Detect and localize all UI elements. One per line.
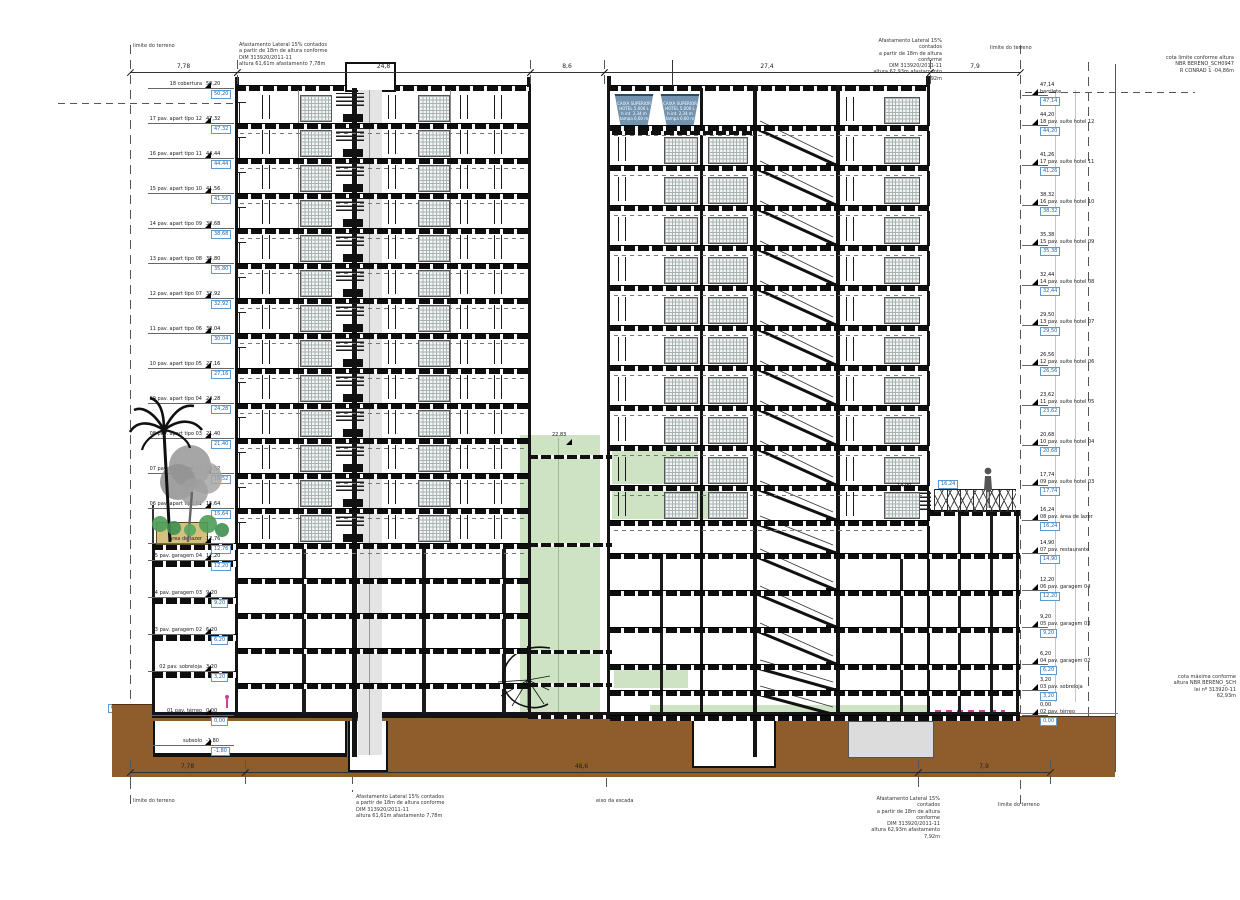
window-grid [418, 410, 450, 437]
balcony-cap [237, 312, 246, 313]
level-elev-box: 47,14 [1040, 97, 1060, 106]
balcony-cap [237, 382, 246, 383]
dim-bottom-label: 7,9 [979, 763, 989, 770]
stair-stripes [336, 233, 364, 246]
ceiling-dash [614, 335, 926, 336]
elevator-shaft-divider [558, 438, 559, 756]
level-leader [1022, 485, 1048, 486]
level-label: 12 pav. suíte hotel 06 [1040, 359, 1132, 365]
level-label: 07 pav. restaurante [1040, 547, 1132, 553]
window-mullion [388, 270, 396, 294]
window-grid [418, 130, 450, 157]
level-elev-box: 26,56 [1040, 367, 1060, 376]
limite-terreno-top-right: limite do terreno [990, 45, 1032, 51]
level-label: 18 pav. suíte hotel 12 [1040, 119, 1132, 125]
level-elev: 35,38 [1040, 232, 1054, 238]
level-flag [1032, 399, 1038, 405]
level-elev-box: 27,16 [211, 370, 231, 379]
window-grid [708, 217, 748, 244]
level-elev-box: 6,20 [1040, 666, 1057, 675]
stair-stripes [336, 163, 364, 176]
window-grid [664, 377, 698, 404]
window-grid [300, 480, 332, 507]
shaft-elev-label: 22,83 [552, 432, 566, 438]
height-limit-line-left [58, 103, 235, 104]
ceiling-dash [614, 255, 926, 256]
window-mullion [846, 257, 854, 281]
balcony-cap [237, 347, 246, 348]
window-mullion [618, 492, 626, 516]
window-mullion [460, 305, 468, 329]
limite-terreno-bottom-right: limite do terreno [998, 802, 1040, 808]
landscape-trees [128, 394, 240, 546]
window-mullion [460, 515, 468, 539]
dim-top-label: 7,9 [970, 63, 980, 70]
window-mullion [846, 97, 854, 121]
window-mullion [618, 377, 626, 401]
window-mullion [262, 305, 270, 329]
window-grid [664, 492, 698, 519]
window-grid [884, 297, 920, 324]
level-elev-box: 12,20 [211, 562, 231, 571]
level-leader [1022, 520, 1048, 521]
window-grid [300, 305, 332, 332]
dim-bottom-label: 7,78 [181, 763, 194, 770]
window-mullion [460, 480, 468, 504]
stair-block [343, 254, 363, 262]
floor-slab [610, 325, 930, 331]
window-grid [664, 417, 698, 444]
window-grid [418, 340, 450, 367]
dim-top-ext [130, 60, 131, 84]
window-mullion [460, 235, 468, 259]
level-elev-box: 3,20 [1040, 692, 1057, 701]
level-elev: 41,26 [1040, 152, 1054, 158]
level-flag [1032, 279, 1038, 285]
level-elev: 26,56 [1040, 352, 1054, 358]
window-mullion [262, 445, 270, 469]
window-mullion [262, 480, 270, 504]
ceiling-dash [240, 203, 526, 204]
level-elev-box: 38,68 [211, 230, 231, 239]
bridge-slab [528, 715, 612, 719]
dim-top-line [237, 72, 530, 73]
left-tower-wall-right [528, 85, 531, 715]
terrace-elev-box: 16,24 [938, 480, 958, 489]
ceiling-dash [240, 133, 526, 134]
level-flag [1032, 359, 1038, 365]
stair-stripes [336, 128, 364, 141]
window-mullion [494, 130, 502, 154]
window-mullion [494, 305, 502, 329]
window-mullion [262, 375, 270, 399]
level-elev-box: 35,38 [1040, 247, 1060, 256]
level-label: 09 pav. suíte hotel 03 [1040, 479, 1132, 485]
balcony-rail [239, 102, 240, 123]
balcony-rail [239, 277, 240, 298]
podium-slab [237, 578, 528, 584]
dim-top-ext [530, 60, 531, 84]
level-elev-box: 9,20 [211, 599, 228, 608]
level-leader [1022, 590, 1048, 591]
window-mullion [460, 95, 468, 119]
window-mullion [846, 417, 854, 441]
level-label: 06 pav. garagem 04 [1040, 584, 1132, 590]
level-flag [1032, 584, 1038, 590]
level-elev-box: 0,00 [1040, 717, 1057, 726]
ceiling-dash [240, 413, 526, 414]
stair-stripes [336, 338, 364, 351]
window-mullion [460, 340, 468, 364]
stair-stripes [336, 268, 364, 281]
level-label: 12 pav. apart tipo 07 [112, 291, 202, 297]
window-grid [300, 270, 332, 297]
ceiling-dash [240, 518, 526, 519]
street-figure [226, 699, 228, 708]
window-mullion [494, 480, 502, 504]
level-label: 15 pav. apart tipo 10 [112, 186, 202, 192]
ceiling-dash [614, 495, 926, 496]
floor-slab [237, 403, 528, 409]
floor-slab [610, 165, 930, 171]
window-mullion [618, 217, 626, 241]
window-mullion [494, 200, 502, 224]
level-elev: 20,68 [1040, 432, 1054, 438]
level-elev: 38,32 [1040, 192, 1054, 198]
level-leader [1022, 690, 1048, 691]
window-grid [300, 445, 332, 472]
level-elev-box: 35,80 [211, 265, 231, 274]
floor-slab [610, 405, 930, 411]
limite-terreno-top-left: limite do terreno [133, 43, 175, 49]
level-elev: 14,90 [1040, 540, 1054, 546]
level-elev-box: 32,92 [211, 300, 231, 309]
window-mullion [388, 410, 396, 434]
foundation-block-right [848, 721, 934, 758]
window-mullion [618, 257, 626, 281]
level-leader [148, 368, 234, 369]
right-parapet-a [607, 76, 611, 87]
floor-slab [237, 298, 528, 304]
level-elev: 23,62 [1040, 392, 1054, 398]
level-leader [148, 560, 234, 561]
window-mullion [388, 235, 396, 259]
window-grid [664, 297, 698, 324]
window-mullion [388, 445, 396, 469]
window-mullion [262, 270, 270, 294]
ceiling-dash [614, 135, 926, 136]
balcony-rail [239, 312, 240, 333]
level-label: 04 pav. garagem 03 [112, 590, 202, 596]
dim-bottom-label: 48,6 [575, 763, 588, 770]
window-mullion [494, 410, 502, 434]
stair-block [343, 359, 363, 367]
podium-wall-right [1016, 510, 1019, 715]
dim-top-label: 24,8 [377, 63, 390, 70]
right-tower-wall-left [607, 85, 610, 715]
window-grid [418, 95, 450, 122]
window-mullion [846, 337, 854, 361]
dim-bottom-ext [1050, 760, 1051, 784]
window-grid [708, 377, 748, 404]
level-elev: 0,00 [1040, 702, 1051, 708]
level-elev-box: 0,00 [211, 717, 228, 726]
window-mullion [494, 515, 502, 539]
level-elev-box: 17,74 [1040, 487, 1060, 496]
window-mullion [262, 515, 270, 539]
level-label: 10 pav. apart tipo 05 [112, 361, 202, 367]
floor-slab [237, 508, 528, 514]
window-mullion [846, 457, 854, 481]
floor-slab [610, 590, 1020, 596]
window-mullion [388, 375, 396, 399]
window-mullion [846, 492, 854, 516]
level-leader [148, 597, 234, 598]
level-label: 05 pav. garagem 03 [1040, 621, 1132, 627]
podium-column-1 [958, 515, 961, 713]
level-elev-box: 30,04 [211, 335, 231, 344]
dim-top-ext [1020, 60, 1021, 84]
dim-top-ext [604, 60, 605, 84]
window-mullion [460, 445, 468, 469]
window-mullion [494, 95, 502, 119]
window-mullion [846, 177, 854, 201]
level-elev-box: 12,20 [1040, 592, 1060, 601]
level-elev-box: 14,90 [1040, 555, 1060, 564]
window-mullion [494, 235, 502, 259]
window-mullion [618, 417, 626, 441]
level-leader [1022, 553, 1048, 554]
window-mullion [618, 337, 626, 361]
water-tank-2: CAIXA SUPERIOR HOTEL 5.000 L h int. 2,34… [659, 94, 701, 126]
floor-slab [610, 285, 930, 291]
window-grid [418, 515, 450, 542]
building-section-sheet: 0,00 CAIXA SUPERIOR HOTEL 5.000 L h int.… [0, 0, 1240, 900]
eixo-label: eixo da escada [596, 798, 633, 804]
level-elev: 3,20 [1040, 677, 1051, 683]
level-elev: 16,24 [1040, 507, 1054, 513]
bridge-slab [528, 650, 612, 654]
balcony-cap [237, 172, 246, 173]
level-flag [1032, 439, 1038, 445]
window-grid [418, 480, 450, 507]
floor-slab [237, 123, 528, 129]
window-mullion [388, 305, 396, 329]
floor-slab [610, 205, 930, 211]
level-leader [148, 123, 234, 124]
leader-guide-1 [1055, 90, 1056, 702]
level-flag [1032, 684, 1038, 690]
window-grid [708, 177, 748, 204]
balcony-rail [239, 172, 240, 193]
ceiling-dash [614, 215, 926, 216]
level-elev: 12,20 [1040, 577, 1054, 583]
window-grid [300, 130, 332, 157]
window-grid [418, 375, 450, 402]
stair-block [343, 289, 363, 297]
window-grid [418, 270, 450, 297]
floor-slab [237, 263, 528, 269]
stair-block [343, 149, 363, 157]
podium-slab [237, 613, 528, 619]
ceiling-dash [614, 295, 926, 296]
window-mullion [460, 410, 468, 434]
window-mullion [388, 340, 396, 364]
level-elev: 17,74 [1040, 472, 1054, 478]
floor-slab [237, 158, 528, 164]
ceiling-dash [614, 530, 926, 531]
window-mullion [262, 410, 270, 434]
stair-stripes [336, 93, 364, 106]
window-mullion [618, 177, 626, 201]
window-grid [664, 137, 698, 164]
level-flag [1032, 709, 1038, 715]
basement-floor-slab [153, 753, 345, 757]
window-grid [884, 417, 920, 444]
balcony-cap [237, 137, 246, 138]
stair-block [343, 394, 363, 402]
level-elev-box: 44,20 [1040, 127, 1060, 136]
level-flag [1032, 621, 1038, 627]
left-core-shaft-line [369, 90, 370, 755]
level-label: barrilete [1040, 89, 1132, 95]
window-grid [300, 235, 332, 262]
floor-slab [610, 664, 1020, 670]
stair-block [343, 429, 363, 437]
level-leader [148, 333, 234, 334]
level-label: 03 pav. garagem 02 [112, 627, 202, 633]
window-grid [300, 165, 332, 192]
level-elev-box: 6,20 [211, 636, 228, 645]
level-leader [148, 228, 234, 229]
level-leader [1022, 125, 1048, 126]
window-mullion [460, 200, 468, 224]
window-grid [708, 257, 748, 284]
floor-slab [237, 333, 528, 339]
window-mullion [262, 340, 270, 364]
level-flag [1032, 199, 1038, 205]
core-pit-center [692, 721, 776, 768]
window-grid [884, 137, 920, 164]
floor-slab [610, 627, 1020, 633]
ceiling-dash [240, 448, 526, 449]
window-grid [300, 410, 332, 437]
window-mullion [494, 445, 502, 469]
level-elev: 6,20 [1040, 651, 1051, 657]
level-leader [1022, 245, 1048, 246]
dim-bottom-ext [918, 760, 919, 784]
level-label: 14 pav. suíte hotel 08 [1040, 279, 1132, 285]
leader-guide-2 [1075, 90, 1076, 702]
setback-note-top-left: Afastamento Lateral 15% contados a parti… [239, 42, 327, 67]
window-grid [708, 457, 748, 484]
floor-slab [237, 543, 528, 549]
window-grid [664, 217, 698, 244]
level-label: 17 pav. suíte hotel 11 [1040, 159, 1132, 165]
window-mullion [846, 137, 854, 161]
bridge-slab [528, 683, 612, 687]
window-mullion [846, 297, 854, 321]
level-leader [1022, 165, 1048, 166]
level-flag [1032, 547, 1038, 553]
level-leader [148, 263, 234, 264]
balcony-cap [237, 207, 246, 208]
floor-slab [237, 193, 528, 199]
floor-slab [610, 245, 930, 251]
ceiling-dash [614, 455, 926, 456]
window-mullion [846, 377, 854, 401]
balcony-rail [239, 207, 240, 228]
level-elev-box: 20,68 [1040, 447, 1060, 456]
mid-right-note: cota máxima conforme altura NBR BERENO_S… [1160, 674, 1236, 699]
stair-stripes [336, 443, 364, 456]
dim-bottom-line [918, 772, 1050, 773]
level-label: 16 pav. apart tipo 11 [112, 151, 202, 157]
level-elev-box: 41,26 [1040, 167, 1060, 176]
window-mullion [388, 165, 396, 189]
window-grid [708, 337, 748, 364]
level-leader [1022, 405, 1048, 406]
level-leader [148, 88, 234, 89]
stair-block [343, 499, 363, 507]
window-grid [300, 200, 332, 227]
level-label: 13 pav. suíte hotel 07 [1040, 319, 1132, 325]
stair-block [343, 114, 363, 122]
setback-note-top-right: Afastamento Lateral 15% contados a parti… [860, 38, 942, 82]
window-grid [884, 377, 920, 404]
right-tower-wall-right [927, 85, 930, 715]
level-leader [148, 158, 234, 159]
window-mullion [262, 130, 270, 154]
balcony-rail [239, 347, 240, 368]
balcony-cap [237, 102, 246, 103]
level-leader [1022, 627, 1048, 628]
right-core-wall [700, 88, 703, 715]
water-tank-1: CAIXA SUPERIOR HOTEL 5.000 L h int. 2,34… [613, 94, 655, 126]
window-mullion [388, 200, 396, 224]
window-grid [300, 340, 332, 367]
window-grid [664, 257, 698, 284]
level-label: subsolo [112, 738, 202, 744]
dim-top-line [930, 72, 1020, 73]
ceiling-dash [240, 483, 526, 484]
level-leader [148, 715, 234, 716]
level-leader [1022, 664, 1048, 665]
ceiling-dash [614, 415, 926, 416]
window-mullion [388, 515, 396, 539]
level-elev-box: -1,80 [211, 747, 230, 756]
floor-slab [237, 228, 528, 234]
level-elev: 32,44 [1040, 272, 1054, 278]
level-elev-box: 41,56 [211, 195, 231, 204]
dim-bottom-ext [245, 760, 246, 784]
level-elev-box: 29,50 [1040, 327, 1060, 336]
level-leader [148, 298, 234, 299]
stair-block [343, 324, 363, 332]
window-mullion [618, 297, 626, 321]
ceiling-dash [240, 168, 526, 169]
window-grid [300, 515, 332, 542]
stair-stripes [336, 513, 364, 526]
level-elev-box: 38,32 [1040, 207, 1060, 216]
level-label: 11 pav. suíte hotel 05 [1040, 399, 1132, 405]
level-elev-box: 16,24 [1040, 522, 1060, 531]
property-line-right [1020, 45, 1021, 805]
level-flag [1032, 514, 1038, 520]
ceiling-dash [240, 378, 526, 379]
dim-top-ext [237, 60, 238, 84]
level-label: 02 pav. sobreloja [112, 664, 202, 670]
